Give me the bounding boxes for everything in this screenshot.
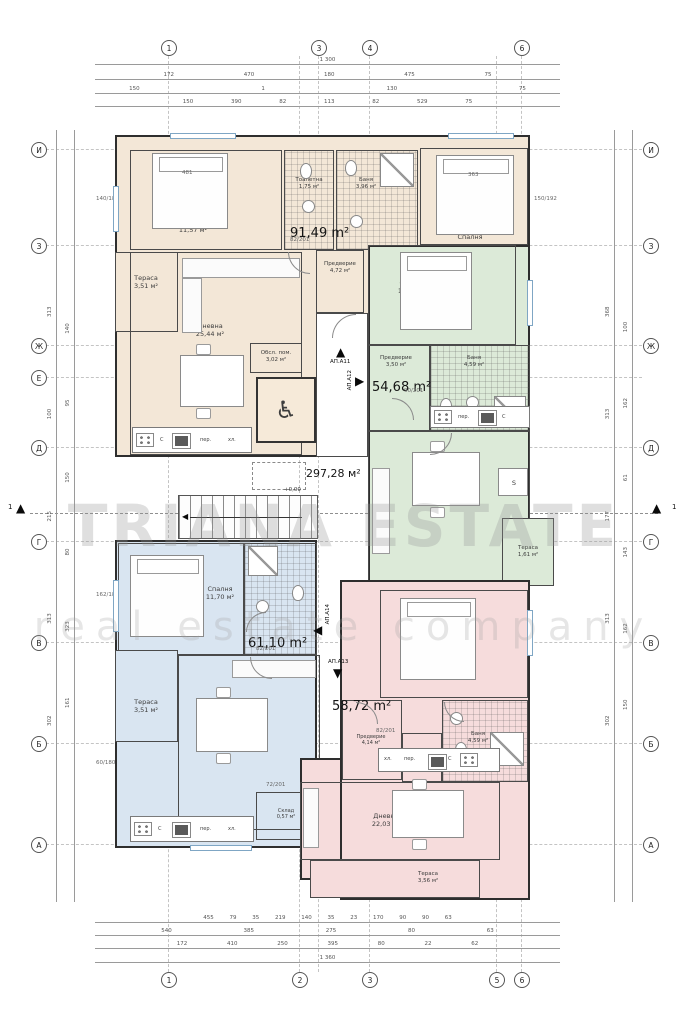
kitchen-sink-icon	[478, 410, 497, 426]
wheelchair-icon: ♿	[275, 396, 297, 424]
dining-table-icon	[392, 790, 464, 838]
grid-bubble-row: Г	[31, 534, 47, 550]
dim-top-row3: 150 1 130 75	[95, 86, 560, 92]
grid-bubble-row: Ж	[31, 338, 47, 354]
chair-icon	[216, 687, 231, 698]
dining-table-icon	[412, 452, 480, 506]
entry-label-a13: АП.А13	[328, 659, 348, 665]
door-size-label: 90/201	[404, 388, 423, 394]
grid-bubble-row: В	[31, 635, 47, 651]
grid-bubble-col: 1	[161, 40, 177, 56]
dim-top-total: 1 300	[95, 57, 560, 63]
grid-bubble-row: З	[643, 238, 659, 254]
chair-icon	[430, 507, 445, 518]
bed-icon	[130, 555, 204, 637]
toilet-icon	[345, 160, 357, 176]
label-a12-hall: Предверие3,50 м²	[380, 355, 412, 369]
dim-line	[95, 106, 560, 107]
dim-line	[95, 64, 560, 65]
kitchen-label-stove: С	[158, 826, 162, 832]
grid-bubble-col: 1	[161, 972, 177, 988]
label-a14-terrace: Тераса3,51 м²	[134, 698, 158, 714]
kitchen-label-fridge: хл.	[228, 826, 236, 832]
kitchen-label-stove: С	[502, 414, 506, 420]
dim-line	[95, 948, 560, 949]
label-a11-bath: Баня3,96 м²	[356, 177, 376, 191]
chair-icon	[412, 839, 427, 850]
dim-line	[74, 130, 75, 902]
kitchen-sink-icon	[428, 754, 447, 770]
bed-dim: 481	[182, 170, 193, 176]
chair-icon	[196, 408, 211, 419]
shower-icon	[380, 153, 414, 187]
dim-line	[95, 935, 560, 936]
dim-top-row4: 150 390 82 113 82 529 75	[95, 99, 560, 105]
area-label-common: 297,28 м²	[306, 467, 361, 480]
bed-icon	[400, 598, 476, 680]
grid-bubble-row: И	[31, 142, 47, 158]
stove-icon	[434, 410, 452, 424]
entry-label-a12: АП.А12	[347, 370, 353, 390]
bed-icon	[400, 252, 472, 330]
lift-landing	[252, 462, 306, 490]
kitchen-label-washer: пер.	[404, 756, 415, 762]
grid-bubble-row: Г	[643, 534, 659, 550]
stove-icon	[134, 822, 152, 836]
section-label-right: 1	[672, 503, 676, 511]
grid-bubble-row: А	[643, 837, 659, 853]
dim-bottom-total: 1 360	[95, 955, 560, 961]
door-size-label: 82/201	[256, 646, 275, 652]
grid-bubble-row: Б	[31, 736, 47, 752]
section-label-left: 1	[8, 503, 12, 511]
entry-label-a14: АП.А14	[325, 604, 331, 624]
dim-line	[95, 962, 560, 963]
toilet-icon	[300, 163, 312, 179]
bed-dim: 363	[468, 172, 479, 178]
chair-icon	[216, 753, 231, 764]
kitchen-sink-icon	[172, 433, 191, 449]
grid-bubble-col: 3	[311, 40, 327, 56]
grid-bubble-row: А	[31, 837, 47, 853]
stove-icon	[460, 753, 478, 767]
sofa-icon	[232, 660, 316, 678]
door-size-label: 82/201	[290, 237, 309, 243]
shower-icon	[248, 546, 278, 576]
label-a11-terrace: Тераса3,51 м²	[134, 274, 158, 290]
dim-line	[614, 130, 615, 902]
label-a13-hall: Предверие4,14 м²	[357, 734, 386, 747]
grid-bubble-row: В	[643, 635, 659, 651]
entry-label-a11: АП.А11	[330, 359, 350, 365]
window-icon	[113, 186, 119, 232]
label-a14-bedroom: Спалня11,70 м²	[206, 585, 234, 601]
kitchen-label-fridge: хл.	[384, 756, 392, 762]
grid-bubble-row: Ж	[643, 338, 659, 354]
wardrobe-icon: S	[498, 468, 528, 496]
dining-table-icon	[180, 355, 244, 407]
grid-bubble-col: 5	[489, 972, 505, 988]
floor-plan-canvas: ▲ 1 ▲ 1 1 300 172 470 180 475 75 150 1 1…	[0, 0, 688, 1024]
grid-bubble-col: 2	[292, 972, 308, 988]
window-icon	[527, 610, 533, 656]
sofa-icon	[372, 468, 390, 554]
label-a14-storage: Склад0,57 м²	[277, 808, 296, 821]
window-icon	[448, 133, 514, 139]
dim-line	[632, 130, 633, 902]
kitchen-label-washer: пер.	[458, 414, 469, 420]
grid-bubble-row: Д	[643, 440, 659, 456]
label-a12-terrace: Тераса1,61 м²	[518, 545, 538, 559]
sofa-icon	[303, 788, 319, 848]
dim-right-col2: 150 162 143 61 162 100	[623, 130, 629, 902]
dim-bottom-row1: 455 79 35 219 140 35 23 170 90 90 63	[95, 915, 560, 921]
sink-icon	[350, 215, 363, 228]
kitchen-label-fridge: хл.	[228, 437, 236, 443]
dim-line	[95, 79, 560, 80]
grid-bubble-col: 6	[514, 40, 530, 56]
stair-direction-line	[190, 517, 302, 518]
entry-arrow-a13-icon: ▼	[333, 667, 342, 679]
sofa-icon	[182, 258, 300, 278]
label-a13-bath: Баня4,59 м²	[468, 731, 488, 745]
kitchen-label-washer: пер.	[200, 826, 211, 832]
dim-left-col1: 302 313 215 100 313	[47, 130, 53, 902]
chair-icon	[412, 779, 427, 790]
entry-arrow-a11-icon: ▲	[336, 346, 345, 358]
dim-bottom-row3: 172 410 250 395 80 22 62	[95, 941, 560, 947]
bed-icon	[152, 153, 228, 229]
dining-table-icon	[196, 698, 268, 752]
section-marker-right-icon: ▲	[652, 502, 661, 514]
kitchen-label-washer: пер.	[200, 437, 211, 443]
stair-arrow-icon: ◀	[182, 513, 188, 521]
elevator: ♿	[256, 377, 316, 443]
label-a13-terrace: Тераса3,56 м²	[418, 871, 438, 885]
label-a11-wc: Тоалетна1,75 м²	[295, 177, 322, 191]
door-size-label: 72/201	[266, 782, 285, 788]
door-size-label: 82/201	[376, 728, 395, 734]
section-line	[30, 513, 658, 514]
sink-icon	[256, 600, 269, 613]
stove-icon	[136, 433, 154, 447]
window-icon	[527, 280, 533, 326]
level-mark: +0,00	[284, 487, 301, 493]
label-a11-service: Обсл. пом.3,02 м²	[261, 350, 292, 364]
room-a13-terrace	[310, 860, 480, 898]
dim-line	[95, 93, 560, 94]
grid-bubble-row: З	[31, 238, 47, 254]
toilet-icon	[292, 585, 304, 601]
window-icon	[190, 845, 252, 851]
dim-left-col2: 161 323 80 150 95 140	[65, 130, 71, 902]
grid-bubble-row: Е	[31, 370, 47, 386]
dim-right-col1: 302 313 177 313 368	[605, 130, 611, 902]
kitchen-sink-icon	[172, 822, 191, 838]
entry-arrow-a12-icon: ▶	[355, 375, 364, 387]
window-size-label: 150/192	[534, 196, 557, 202]
window-icon	[170, 133, 236, 139]
window-icon	[113, 580, 119, 632]
label-a11-hall: Предверие4,72 м²	[324, 261, 356, 275]
label-a12-bath: Баня4,59 м²	[464, 355, 484, 369]
grid-bubble-col: 6	[514, 972, 530, 988]
bed-icon	[436, 155, 514, 235]
window-size-label: 60/180	[96, 760, 115, 766]
watermark-title: TRIANA ESTATE	[0, 492, 688, 560]
chair-icon	[196, 344, 211, 355]
kitchen-label-stove: С	[448, 756, 452, 762]
entry-arrow-a14-icon: ◀	[313, 624, 322, 636]
room-a14-terrace	[115, 650, 178, 742]
section-marker-left-icon: ▲	[16, 502, 25, 514]
dim-line	[95, 922, 560, 923]
grid-bubble-col: 3	[362, 972, 378, 988]
grid-bubble-row: Д	[31, 440, 47, 456]
sink-icon	[302, 200, 315, 213]
kitchen-label-stove: С	[160, 437, 164, 443]
grid-bubble-col: 4	[362, 40, 378, 56]
dim-bottom-row2: 540 385 275 80 63	[95, 928, 560, 934]
dim-line	[56, 130, 57, 902]
grid-bubble-row: И	[643, 142, 659, 158]
room-a11-hall	[316, 250, 364, 313]
wardrobe-label: S	[512, 479, 516, 487]
dim-top-row2: 172 470 180 475 75	[95, 72, 560, 78]
sofa-icon	[182, 278, 202, 333]
grid-bubble-row: Б	[643, 736, 659, 752]
